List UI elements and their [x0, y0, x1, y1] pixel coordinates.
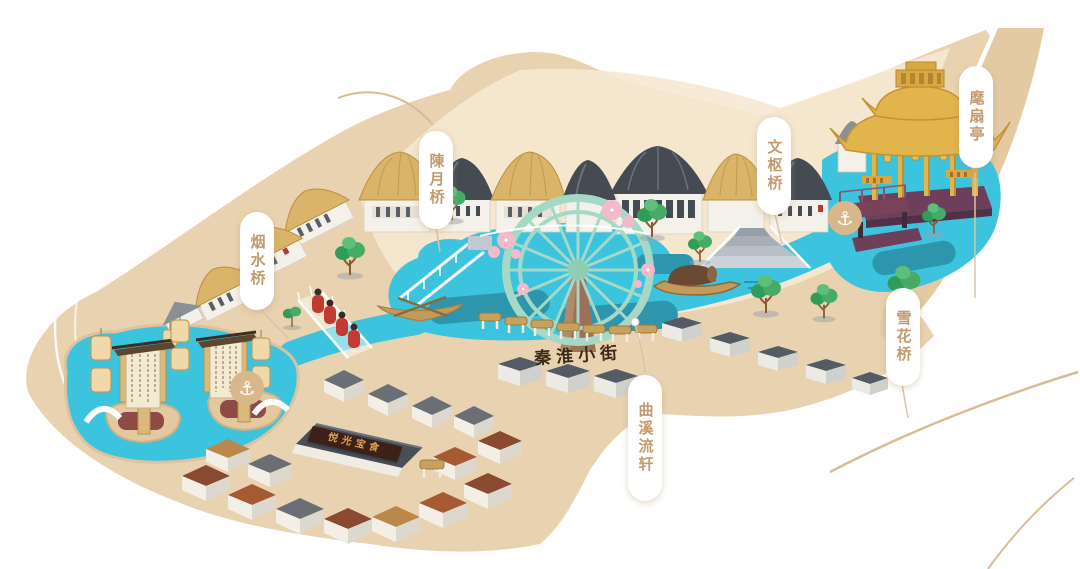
- leader-dot: [631, 318, 639, 326]
- label-yanshui-bridge: 烟水桥: [240, 212, 274, 310]
- label-wenshu-bridge: 文枢桥: [757, 117, 791, 215]
- label-huishan-pavilion: 麾扇亭: [959, 66, 993, 168]
- contour-line: [988, 478, 1074, 569]
- anchor-icon: ⚓: [238, 378, 255, 400]
- anchor-icon: ⚓: [836, 208, 853, 230]
- map-illustration: ⚓ ⚓: [0, 0, 1080, 569]
- label-text: 曲溪流轩: [638, 402, 653, 474]
- hanging-lantern: [91, 328, 111, 392]
- hanging-lantern: [171, 312, 189, 370]
- label-xuehua-bridge: 雪花桥: [886, 288, 920, 386]
- label-text: 陳月桥: [429, 153, 444, 207]
- label-text: 文枢桥: [767, 139, 782, 193]
- label-chenyue-bridge: 陳月桥: [419, 131, 453, 229]
- anchor-marker: ⚓: [828, 201, 862, 235]
- label-text: 雪花桥: [896, 310, 911, 364]
- label-text: 烟水桥: [250, 234, 265, 288]
- park-map: ⚓ ⚓ 麾扇亭 文枢桥 陳月桥 烟水桥 雪花桥 曲溪流轩 秦淮小街 悦光宝食: [0, 0, 1080, 569]
- anchor-marker: ⚓: [230, 371, 264, 405]
- label-text: 麾扇亭: [969, 90, 984, 144]
- label-quxi-liuxuan: 曲溪流轩: [628, 375, 662, 501]
